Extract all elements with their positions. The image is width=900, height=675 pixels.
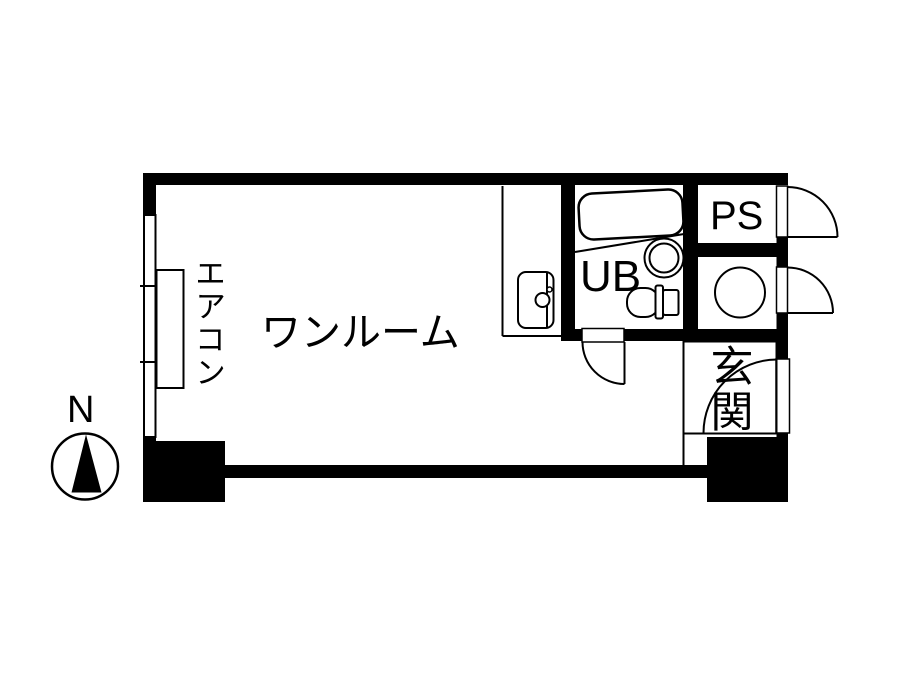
top-wall [143, 173, 788, 185]
bath-right-wall [683, 185, 698, 341]
floor-plan: ワンルーム エアコン UB PS 玄関 N [0, 0, 900, 675]
entrance-label: 玄関 [706, 344, 749, 434]
main-room-label: ワンルーム [261, 313, 460, 353]
unit-bath-label: UB [580, 255, 641, 299]
right-wall-segment-3 [777, 433, 789, 502]
kitchen-sink-knob [536, 293, 550, 307]
kitchen-faucet-dot [547, 287, 552, 292]
meter-door-arc [788, 268, 834, 314]
left-wall-stub [143, 173, 156, 215]
bath-door-opening [582, 329, 624, 343]
bottom-wall [225, 465, 707, 478]
bath-door-arc [583, 342, 625, 384]
bath-left-wall [561, 185, 575, 341]
toilet-seat-bar [656, 286, 664, 319]
left-column [143, 441, 225, 502]
air-conditioner-unit [157, 270, 184, 388]
pipe-space-door-arc [788, 187, 838, 237]
air-conditioner-label: エアコン [192, 257, 223, 389]
pipe-space-divider-wall [683, 243, 788, 257]
washing-machine-space [715, 268, 765, 318]
right-column [707, 437, 787, 502]
meter-door-slab [777, 267, 788, 313]
toilet-tank [663, 290, 679, 315]
pipe-space-door-slab [777, 186, 788, 237]
bathtub [578, 189, 684, 240]
pipe-space-label: PS [710, 196, 763, 236]
entrance-door-slab [776, 359, 790, 433]
north-label: N [67, 391, 94, 429]
walls [143, 173, 788, 502]
right-wall-segment-2 [777, 313, 789, 359]
right-wall-segment-1 [777, 237, 789, 267]
window [144, 215, 156, 437]
